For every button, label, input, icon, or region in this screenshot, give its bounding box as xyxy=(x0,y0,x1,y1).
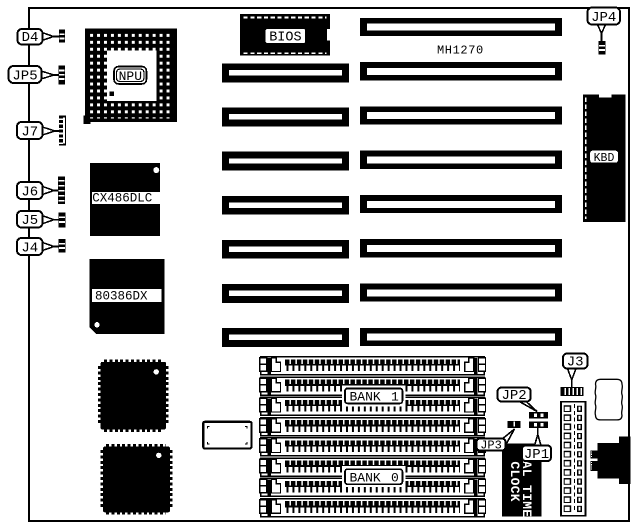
svg-text:D4: D4 xyxy=(22,30,39,46)
svg-text:BANK: BANK xyxy=(350,390,381,405)
svg-text:BIOS: BIOS xyxy=(269,31,301,46)
svg-text:KBD: KBD xyxy=(594,152,615,165)
svg-text:JP3: JP3 xyxy=(480,439,502,453)
svg-text:1: 1 xyxy=(391,390,399,405)
svg-text:J3: J3 xyxy=(567,355,584,371)
svg-text:JP1: JP1 xyxy=(524,447,549,463)
svg-text:80386DX: 80386DX xyxy=(95,290,148,304)
svg-text:J6: J6 xyxy=(21,184,38,200)
svg-text:0: 0 xyxy=(391,470,399,485)
svg-text:J7: J7 xyxy=(21,124,38,140)
svg-text:JP5: JP5 xyxy=(12,68,37,84)
svg-text:CLOCK: CLOCK xyxy=(507,461,522,502)
svg-text:CX486DLC: CX486DLC xyxy=(92,192,152,206)
svg-text:JP4: JP4 xyxy=(591,10,616,26)
svg-text:BANK: BANK xyxy=(350,470,381,485)
svg-text:NPU: NPU xyxy=(119,69,142,84)
svg-text:J4: J4 xyxy=(21,240,38,256)
svg-text:J5: J5 xyxy=(21,213,38,229)
svg-text:JP2: JP2 xyxy=(501,388,526,404)
svg-text:MH1270: MH1270 xyxy=(437,44,484,58)
